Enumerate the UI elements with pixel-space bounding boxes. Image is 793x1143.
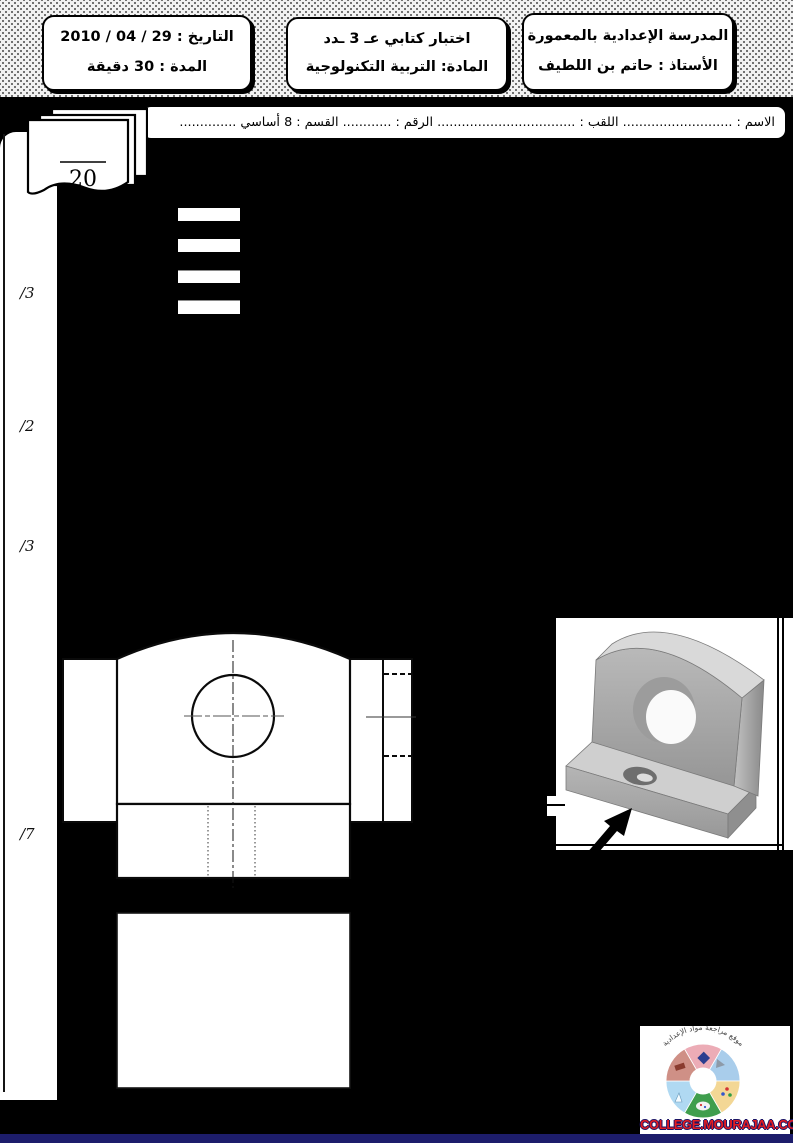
direction-arrow-icon	[586, 808, 632, 859]
teacher-name: الأستاذ : حاتم بن اللطيف	[524, 59, 732, 75]
margin-strip-rule	[3, 134, 5, 1092]
part-3d-view-box	[556, 618, 793, 850]
frame-left-tab-line	[547, 804, 565, 806]
answer-blank-bar-1	[178, 208, 240, 221]
frame-left-tab	[547, 796, 565, 816]
emblem-palette-dot1	[700, 1104, 702, 1106]
emblem-palette-icon	[696, 1102, 710, 1111]
footer-strip	[0, 1134, 793, 1143]
part-3d-image	[556, 618, 777, 846]
exam-info-box: اختبار كتابي عـ 3 ـدد المادة: التربية ال…	[286, 17, 508, 91]
site-logo: موقع مراجعة مواد الإعدادية COLLEGE.MOURA…	[640, 1026, 790, 1134]
exam-paper-page: المدرسة الإعدادية بالمعمورة الأستاذ : حا…	[0, 0, 793, 1143]
side-view-outline	[383, 659, 412, 822]
exam-duration: المدة : 30 دقيقة	[44, 60, 250, 76]
logo-site-text: COLLEGE.MOURAJAA.COM	[640, 1117, 790, 1132]
school-name: المدرسة الإعدادية بالمعمورة	[524, 29, 732, 45]
header-band: المدرسة الإعدادية بالمعمورة الأستاذ : حا…	[0, 0, 793, 101]
grade-papers-svg: 20	[8, 106, 148, 204]
points-mark-2: /2	[20, 417, 35, 435]
grade-denominator: 20	[69, 167, 97, 192]
frame-bottom-line	[556, 844, 783, 846]
subject-name: المادة: التربية التكنولوجية	[288, 60, 506, 76]
school-info-box: المدرسة الإعدادية بالمعمورة الأستاذ : حا…	[522, 13, 734, 91]
points-mark-3: /3	[20, 537, 35, 555]
logo-donut	[666, 1044, 740, 1118]
emblem-center-hole	[690, 1068, 717, 1095]
emblem-dot-green	[728, 1093, 732, 1097]
frame-right-line-inner	[777, 618, 779, 850]
exam-date: التاريخ : 29 / 04 / 2010	[44, 30, 250, 46]
emblem-dot-red	[725, 1087, 729, 1091]
student-info-line: الاسم : ........................... اللق…	[143, 107, 785, 138]
top-view-answer-box	[117, 913, 350, 1088]
logo-emblem-icon: موقع مراجعة مواد الإعدادية	[640, 1026, 790, 1121]
points-mark-4: /7	[20, 825, 35, 843]
answer-blank-bar-2	[178, 239, 240, 252]
frame-right-line-outer	[782, 618, 784, 850]
front-view-right-wing	[350, 659, 383, 822]
emblem-palette-dot2	[704, 1106, 706, 1108]
exam-title: اختبار كتابي عـ 3 ـدد	[288, 32, 506, 48]
grade-papers-icon: 20	[8, 106, 148, 204]
technical-drawing	[55, 595, 430, 1100]
plate-hole-through	[646, 690, 696, 744]
answer-blank-bar-3	[178, 270, 240, 283]
answer-blank-bar-4	[178, 300, 240, 314]
margin-strip: /3 /2 /3 /7	[0, 132, 57, 1100]
points-mark-1: /3	[20, 284, 35, 302]
date-info-box: التاريخ : 29 / 04 / 2010 المدة : 30 دقيق…	[42, 15, 252, 91]
front-view-left-wing	[63, 659, 117, 822]
emblem-dot-blue	[721, 1092, 725, 1096]
